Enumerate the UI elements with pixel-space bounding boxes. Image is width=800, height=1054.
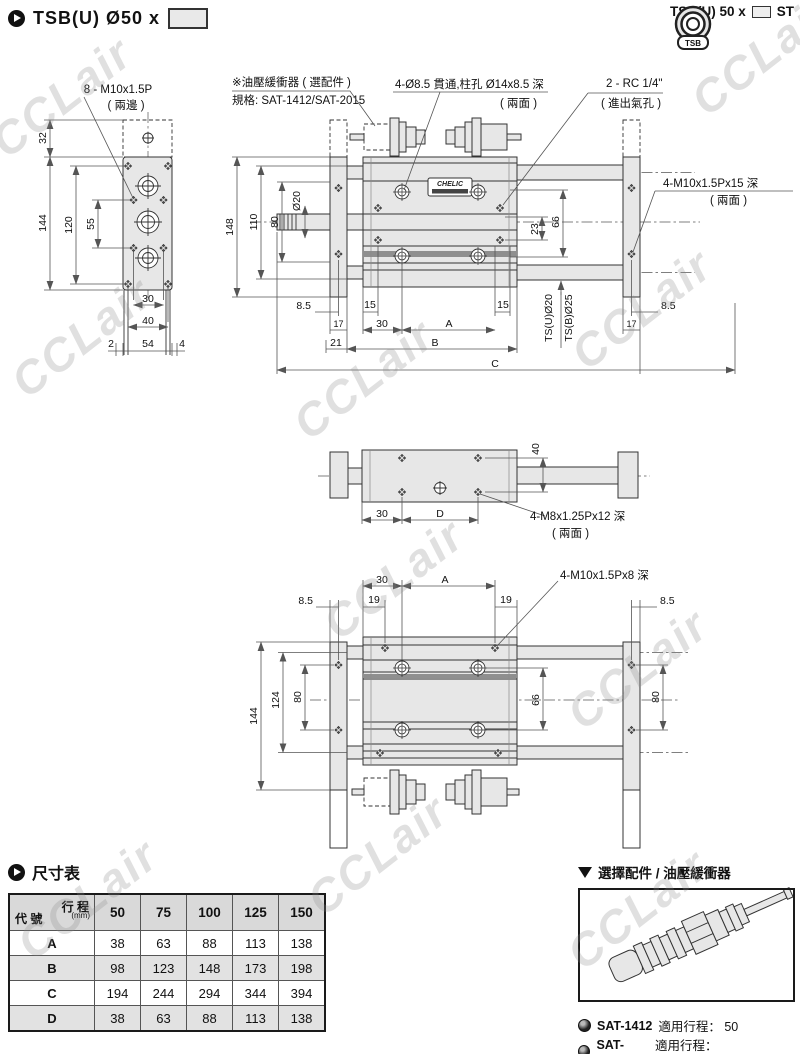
shock-absorber-left-bottom bbox=[352, 770, 425, 814]
through-hole-note: 4-Ø8.5 貫通,柱孔 Ø14x8.5 深 bbox=[395, 77, 544, 91]
side-thread-note-2: ( 兩面 ) bbox=[552, 528, 589, 540]
front-view-drawing: CHELIC ※油壓緩衝器 ( 選配件 ) 規格: SAT-1 bbox=[224, 75, 793, 374]
page-title: TSB(U) Ø50 x bbox=[33, 8, 160, 29]
dim-21: 21 bbox=[330, 337, 342, 349]
table-cell: 63 bbox=[141, 1006, 187, 1032]
dim-8p5-left: 8.5 bbox=[296, 300, 311, 312]
dim-8p5-right: 8.5 bbox=[661, 300, 676, 312]
table-cell: 88 bbox=[187, 931, 233, 956]
row-label: D bbox=[9, 1006, 95, 1032]
port-note-2: ( 進出氣孔 ) bbox=[601, 96, 661, 110]
dim-110: 110 bbox=[248, 213, 260, 230]
column-header: 125 bbox=[233, 894, 279, 931]
table-cell: 394 bbox=[279, 981, 326, 1006]
table-cell: 98 bbox=[95, 956, 141, 981]
dim-124: 124 bbox=[270, 691, 282, 709]
table-cell: 194 bbox=[95, 981, 141, 1006]
dim-15-right: 15 bbox=[497, 299, 509, 311]
dim-D: D bbox=[436, 508, 444, 520]
dim-80: 80 bbox=[269, 216, 281, 228]
catalog-page: 8 - M10x1.5P ( 兩邊 ) 32 144 120 55 30 40 … bbox=[0, 0, 800, 1054]
dim-32: 32 bbox=[37, 132, 49, 144]
table-cell: 88 bbox=[187, 1006, 233, 1032]
dim-15-left: 15 bbox=[364, 299, 376, 311]
dim-B: B bbox=[431, 337, 438, 349]
table-row: C 194 244 294 344 394 bbox=[9, 981, 325, 1006]
shock-absorber-right bbox=[446, 118, 521, 156]
accessory-title: 選擇配件 / 油壓緩衝器 bbox=[598, 862, 731, 882]
dimension-table-title: 尺寸表 bbox=[32, 860, 80, 884]
row-label: A bbox=[9, 931, 95, 956]
dim-17-left: 17 bbox=[333, 319, 343, 329]
dim-80-right: 80 bbox=[650, 691, 662, 703]
table-cell: 148 bbox=[187, 956, 233, 981]
dim-19-right: 19 bbox=[500, 594, 512, 606]
bullet-icon bbox=[578, 1019, 591, 1032]
through-hole-note-2: ( 兩面 ) bbox=[500, 98, 537, 110]
dim-8p5-right: 8.5 bbox=[660, 595, 675, 607]
dim-40: 40 bbox=[530, 443, 542, 455]
dim-144: 144 bbox=[248, 707, 260, 725]
play-icon bbox=[8, 10, 25, 27]
dim-17-right: 17 bbox=[626, 319, 636, 329]
dim-120: 120 bbox=[63, 216, 75, 234]
accessory-section-header: 選擇配件 / 油壓緩衝器 bbox=[578, 862, 731, 882]
table-cell: 198 bbox=[279, 956, 326, 981]
column-header: 150 bbox=[279, 894, 326, 931]
shock-absorber-right-bottom bbox=[446, 770, 519, 814]
svg-text:TSB: TSB bbox=[685, 39, 701, 48]
dim-C: C bbox=[491, 358, 499, 370]
end-view-thread-note-2: ( 兩邊 ) bbox=[107, 98, 144, 112]
table-cell: 113 bbox=[233, 1006, 279, 1032]
buffer-spec-note: 規格: SAT-1412/SAT-2015 bbox=[232, 93, 365, 107]
accessory-image-frame bbox=[578, 888, 795, 1002]
stroke-size-box-small bbox=[752, 6, 771, 18]
accessory-item: SAT-1412 適用行程： 50 bbox=[578, 1016, 738, 1035]
dimension-table-header: 尺寸表 bbox=[8, 860, 80, 884]
dim-23: 23 bbox=[529, 223, 541, 235]
table-cell: 113 bbox=[233, 931, 279, 956]
dim-A: A bbox=[445, 318, 452, 330]
accessory-desc: 適用行程： 75,100,125,150 bbox=[655, 1035, 800, 1054]
table-cell: 173 bbox=[233, 956, 279, 981]
accessory-desc: 適用行程： 50 bbox=[658, 1016, 738, 1035]
dim-30: 30 bbox=[376, 508, 388, 520]
dim-19-left: 19 bbox=[368, 594, 380, 606]
dimension-table: 行 程 (mm) 代 號 50 75 100 125 150 A 38 63 8… bbox=[8, 893, 326, 1032]
corner-unit-label: (mm) bbox=[71, 911, 90, 920]
table-cell: 38 bbox=[95, 931, 141, 956]
table-row: D 38 63 88 113 138 bbox=[9, 1006, 325, 1032]
dim-40: 40 bbox=[142, 315, 154, 327]
column-header: 50 bbox=[95, 894, 141, 931]
dim-A: A bbox=[441, 574, 448, 586]
buffer-note: ※油壓緩衝器 ( 選配件 ) bbox=[232, 75, 351, 89]
dim-dia20: Ø20 bbox=[291, 191, 303, 211]
dim-54: 54 bbox=[142, 338, 154, 350]
rod-dia-label-tsb: TS(B)Ø25 bbox=[563, 294, 575, 341]
play-icon bbox=[8, 864, 25, 881]
column-header: 75 bbox=[141, 894, 187, 931]
dim-30: 30 bbox=[376, 318, 388, 330]
side-thread-note: 4-M8x1.25Px12 深 bbox=[530, 509, 625, 523]
table-cell: 38 bbox=[95, 1006, 141, 1032]
bottom-view-drawing: 30 A 8.5 19 19 8.5 4-M10x1.5Px8 深 144 12… bbox=[248, 568, 690, 848]
table-cell: 244 bbox=[141, 981, 187, 1006]
side-view-drawing: 40 30 D 4-M8x1.25Px12 深 ( 兩面 ) bbox=[318, 443, 650, 540]
table-row: A 38 63 88 113 138 bbox=[9, 931, 325, 956]
accessory-item: SAT-2015 適用行程： 75,100,125,150 bbox=[578, 1035, 800, 1054]
row-label: B bbox=[9, 956, 95, 981]
table-corner-cell: 行 程 (mm) 代 號 bbox=[9, 894, 95, 931]
table-cell: 123 bbox=[141, 956, 187, 981]
table-cell: 138 bbox=[279, 1006, 326, 1032]
table-cell: 63 bbox=[141, 931, 187, 956]
dim-148: 148 bbox=[224, 218, 236, 236]
dim-80-left: 80 bbox=[292, 691, 304, 703]
dim-66: 66 bbox=[550, 216, 562, 228]
shock-absorber-left bbox=[350, 118, 425, 156]
corner-code-label: 代 號 bbox=[15, 910, 42, 927]
bottom-thread-note: 4-M10x1.5Px8 深 bbox=[560, 568, 649, 582]
nameplate-logo: CHELIC bbox=[437, 181, 464, 188]
dim-4: 4 bbox=[179, 338, 185, 350]
column-header: 100 bbox=[187, 894, 233, 931]
bullet-icon bbox=[578, 1045, 590, 1054]
triangle-down-icon bbox=[578, 867, 592, 878]
port-note: 2 - RC 1/4" bbox=[606, 78, 663, 90]
dim-8p5-left: 8.5 bbox=[298, 595, 313, 607]
dim-144: 144 bbox=[37, 214, 49, 232]
nameplate: CHELIC bbox=[428, 178, 472, 196]
dim-2: 2 bbox=[108, 338, 114, 350]
cylinder-bore-icon: TSB bbox=[670, 4, 716, 52]
rod-dia-label-tsu: TS(U)Ø20 bbox=[543, 294, 555, 342]
page-title-bar: TSB(U) Ø50 x bbox=[8, 8, 208, 29]
row-label: C bbox=[9, 981, 95, 1006]
dim-30: 30 bbox=[142, 293, 154, 305]
thread-depth-note-2: ( 兩面 ) bbox=[710, 195, 747, 207]
table-cell: 138 bbox=[279, 931, 326, 956]
dim-30: 30 bbox=[376, 574, 388, 586]
end-view-thread-note: 8 - M10x1.5P bbox=[84, 84, 153, 96]
dim-55: 55 bbox=[85, 218, 97, 230]
table-cell: 294 bbox=[187, 981, 233, 1006]
table-cell: 344 bbox=[233, 981, 279, 1006]
table-row: B 98 123 148 173 198 bbox=[9, 956, 325, 981]
end-view-drawing: 8 - M10x1.5P ( 兩邊 ) 32 144 120 55 30 40 … bbox=[37, 0, 330, 356]
accessory-model: SAT-1412 bbox=[597, 1019, 652, 1033]
model-code-suffix: ST bbox=[777, 4, 794, 19]
stroke-size-box bbox=[168, 8, 208, 29]
model-code-header: TSB TSB(U) 50 x ST bbox=[670, 4, 794, 19]
accessory-model: SAT-2015 bbox=[596, 1038, 649, 1054]
dim-66: 66 bbox=[530, 694, 542, 706]
thread-depth-note: 4-M10x1.5Px15 深 bbox=[663, 176, 758, 190]
